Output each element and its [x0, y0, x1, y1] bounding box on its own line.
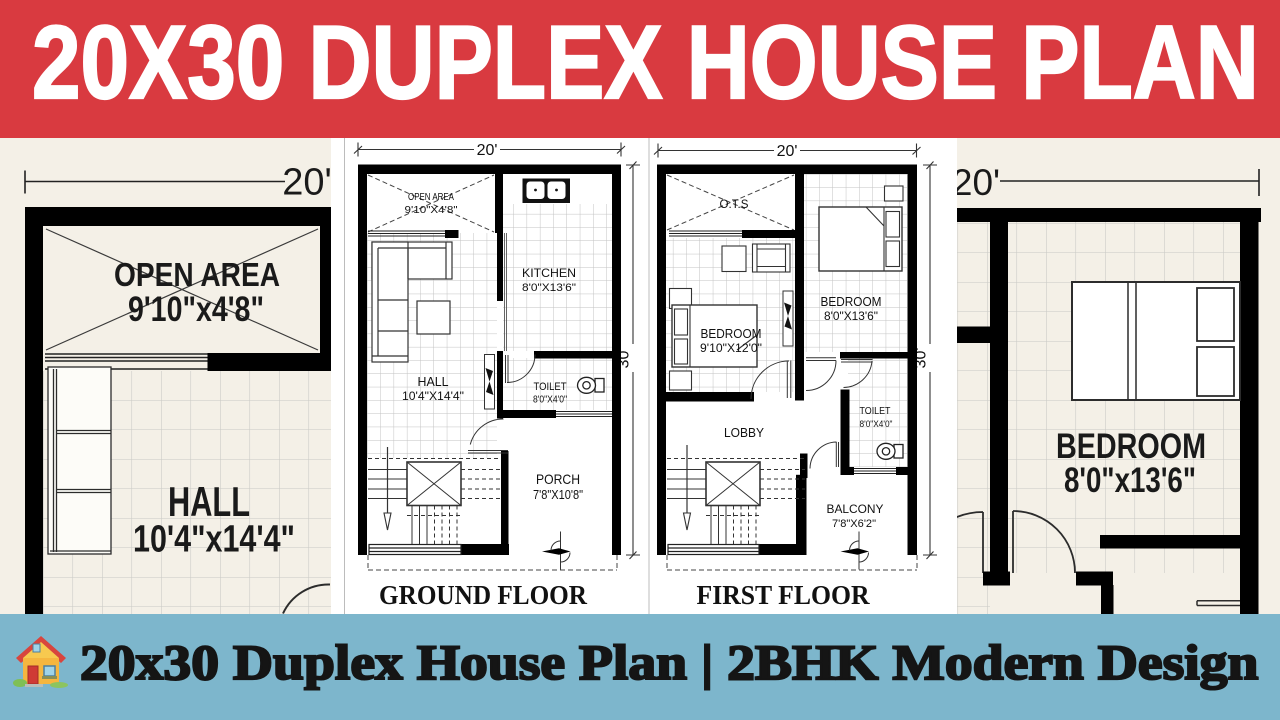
- svg-text:10'4"X14'4": 10'4"X14'4": [402, 391, 464, 403]
- svg-text:7'8"X6'2": 7'8"X6'2": [832, 518, 876, 530]
- svg-text:HALL: HALL: [418, 375, 449, 389]
- svg-text:PORCH: PORCH: [536, 471, 580, 487]
- svg-text:20': 20': [282, 162, 332, 204]
- svg-text:8'0"x13'6": 8'0"x13'6": [1064, 461, 1196, 500]
- svg-text:GROUND FLOOR: GROUND FLOOR: [379, 579, 588, 610]
- svg-text:8'0"X13'6": 8'0"X13'6": [522, 282, 576, 294]
- svg-text:20': 20': [952, 162, 1000, 203]
- svg-text:9'10"X12'0": 9'10"X12'0": [700, 343, 762, 355]
- svg-text:KITCHEN: KITCHEN: [522, 266, 576, 280]
- svg-text:8'0"X4'0": 8'0"X4'0": [533, 395, 567, 406]
- svg-text:8'0"X4'0": 8'0"X4'0": [860, 419, 893, 430]
- svg-text:8'0"X13'6": 8'0"X13'6": [824, 311, 878, 323]
- svg-text:7'8"X10'8": 7'8"X10'8": [533, 488, 583, 502]
- svg-text:20': 20': [777, 143, 798, 160]
- svg-text:TOILET: TOILET: [860, 405, 891, 417]
- svg-text:O.T.S: O.T.S: [720, 197, 749, 211]
- svg-text:9'10"X4'8": 9'10"X4'8": [405, 204, 458, 216]
- svg-text:TOILET: TOILET: [534, 381, 567, 393]
- svg-text:LOBBY: LOBBY: [724, 426, 765, 440]
- svg-text:BEDROOM: BEDROOM: [821, 295, 882, 309]
- svg-text:OPEN AREA: OPEN AREA: [114, 256, 280, 293]
- svg-text:20': 20': [477, 142, 498, 159]
- svg-text:BEDROOM: BEDROOM: [701, 327, 762, 341]
- svg-text:FIRST FLOOR: FIRST FLOOR: [697, 579, 871, 610]
- svg-text:9'10"x4'8": 9'10"x4'8": [128, 290, 264, 329]
- svg-text:BALCONY: BALCONY: [827, 502, 884, 516]
- svg-text:10'4"x14'4": 10'4"x14'4": [133, 519, 295, 561]
- svg-text:OPEN AREA: OPEN AREA: [408, 191, 454, 203]
